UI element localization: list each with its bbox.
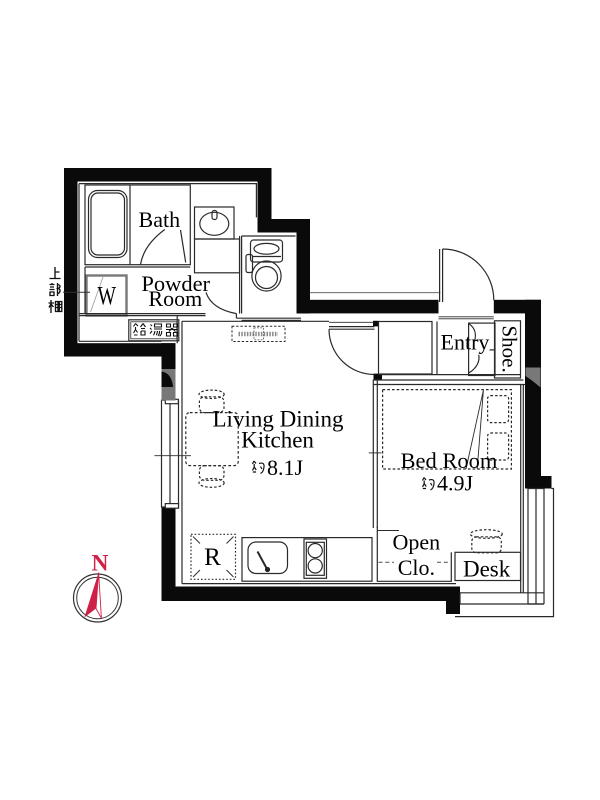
svg-text:4.9J: 4.9J xyxy=(437,471,474,496)
svg-text:Entry: Entry xyxy=(441,330,490,355)
svg-text:Clo.: Clo. xyxy=(398,555,435,580)
svg-text:8.1J: 8.1J xyxy=(267,455,304,480)
svg-text:Bath: Bath xyxy=(139,207,181,232)
svg-text:Bed Room: Bed Room xyxy=(401,448,498,473)
svg-text:R: R xyxy=(204,544,221,571)
svg-text:Shoe.: Shoe. xyxy=(498,326,522,373)
svg-text:Open: Open xyxy=(392,530,440,555)
svg-text:Kitchen: Kitchen xyxy=(241,428,314,453)
svg-text:Desk: Desk xyxy=(463,557,511,582)
svg-text:Room: Room xyxy=(148,286,202,311)
svg-text:N: N xyxy=(92,551,109,577)
svg-text:W: W xyxy=(98,282,117,311)
